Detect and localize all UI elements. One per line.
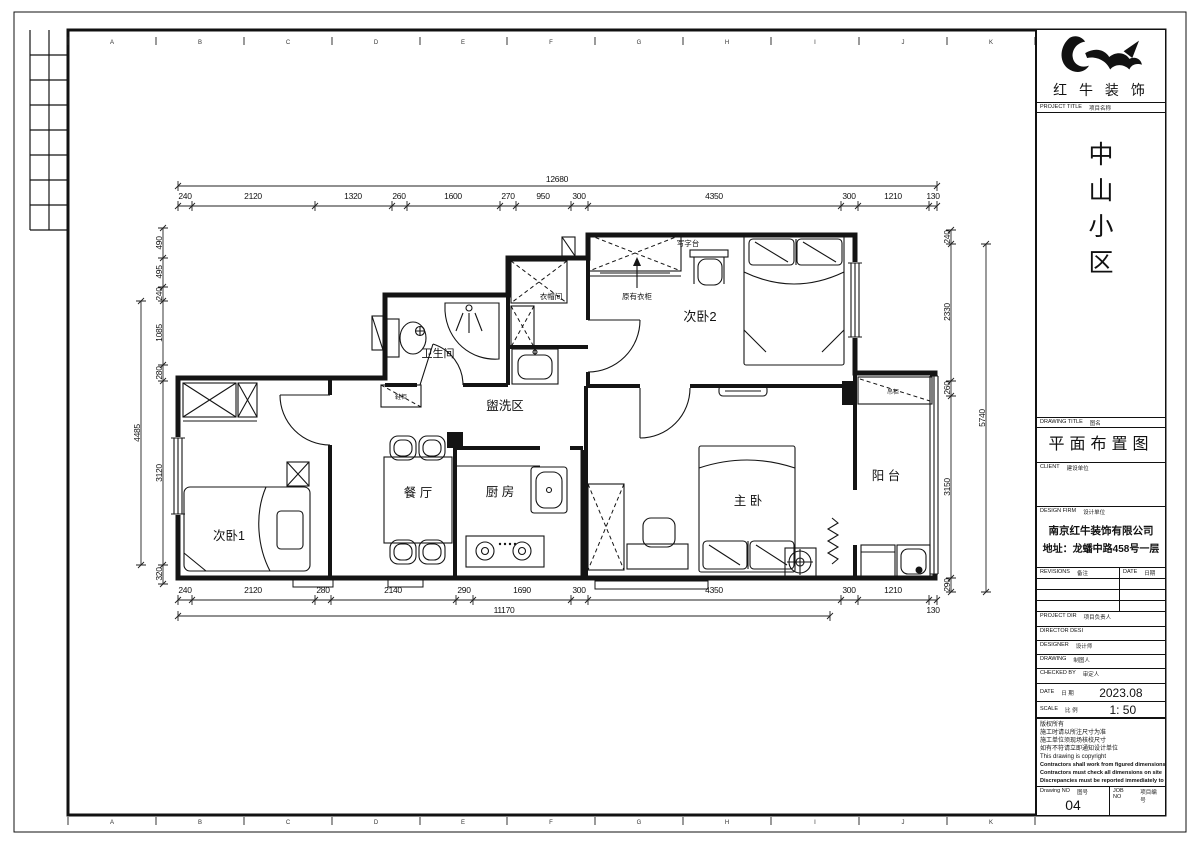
label: JOB NO: [1113, 788, 1133, 800]
dim-value: 280: [154, 366, 164, 380]
note-line: Contractors must check all dimensions on…: [1040, 769, 1162, 777]
dim-value: 240: [942, 230, 952, 244]
nightstand-icon: [287, 462, 309, 486]
grid-letter: B: [198, 40, 202, 46]
dim-value: 3120: [154, 464, 164, 482]
wall-column: [842, 381, 857, 405]
door-bedroom1: [280, 395, 330, 445]
drawing-title: 平面布置图: [1037, 428, 1165, 463]
master-bed-icon: [699, 446, 795, 572]
label: PROJECT TITLE: [1040, 104, 1082, 110]
desk-icon: [690, 250, 728, 285]
grid-letter: B: [198, 820, 202, 826]
date-row: DATE 日 期 2023.08: [1037, 684, 1165, 702]
company-logo-bull-icon: [1039, 32, 1165, 82]
dim-value: 240: [154, 287, 164, 301]
room-label-balcony: 阳 台: [872, 468, 900, 483]
fold-mark-boxes: [30, 30, 68, 230]
design-firm-row: DESIGN FIRM 设计单位 南京红牛装饰有限公司 地址：龙蟠中路458号一…: [1037, 507, 1165, 568]
dim-value: 320: [154, 567, 164, 581]
wardrobe-icon: [183, 383, 257, 421]
label: 建设单位: [1067, 464, 1089, 472]
director-row: DIRECTOR DESI: [1037, 627, 1165, 641]
dim-value: 495: [154, 265, 164, 279]
pipe-shaft-icon: [372, 316, 383, 350]
label: DATE: [1040, 689, 1054, 695]
grid-letter: I: [814, 40, 816, 46]
dim-value: 12680: [546, 174, 569, 184]
grid-letter: C: [286, 40, 291, 46]
dim-value: 270: [501, 191, 515, 201]
master-wardrobe-icon: [588, 484, 624, 570]
dining-table-icon: [384, 436, 452, 564]
room-label-bedroom2: 次卧2: [683, 309, 716, 324]
scale-row: SCALE 比 例 1: 50: [1037, 702, 1165, 718]
grid-letter: K: [989, 820, 993, 826]
walls: [178, 235, 935, 578]
dim-value: 1600: [444, 191, 462, 201]
dim-value: 300: [572, 191, 586, 201]
dimensions-bottom: 240 2120 280 2140 290 1690 300 4350 300 …: [175, 585, 940, 621]
master-desk-icon: [627, 518, 688, 569]
dim-value: 490: [154, 236, 164, 250]
annotation-hanging-cabinet: 吊柜: [887, 388, 899, 396]
annotation-existing-wardrobe: 原有衣柜: [622, 291, 652, 301]
dim-value: 4350: [705, 585, 723, 595]
project-dir-row: PROJECT DIR 项目负责人: [1037, 612, 1165, 627]
drawing-title-header: DRAWING TITLE 图名: [1037, 418, 1165, 428]
sheet-border: [14, 12, 1186, 832]
note-line: 施工时请以所注尺寸为准: [1040, 729, 1162, 737]
dimensions-left: 490 495 240 1085 280 3120 320 4485: [132, 225, 168, 587]
label: 制图人: [1073, 656, 1090, 664]
drawing-number: 04: [1037, 797, 1109, 813]
label: 项目名称: [1089, 104, 1111, 112]
grid-letter: F: [549, 40, 553, 46]
label: 设计单位: [1083, 508, 1105, 516]
project-title-header: PROJECT TITLE 项目名称: [1037, 103, 1165, 113]
dim-value: 130: [926, 191, 940, 201]
dimensions-right: 240 2330 260 3150 290 5740: [942, 227, 991, 595]
dim-value: 4485: [132, 424, 142, 442]
wall-column: [447, 432, 463, 448]
note-line: Discrepancies must be reported immediate…: [1040, 777, 1162, 785]
label: DIRECTOR DESI: [1040, 628, 1083, 634]
door-master: [640, 388, 690, 438]
windows: [171, 262, 943, 589]
wardrobe2-icon: [589, 235, 681, 288]
project-name-char: 区: [1088, 245, 1113, 281]
grid-letter: D: [374, 40, 379, 46]
notes-block: 版权所有 施工时请以所注尺寸为准 施工单位须现场核校尺寸 如有不符请立即通知设计…: [1037, 718, 1165, 787]
dim-value: 300: [572, 585, 586, 595]
dim-value: 3150: [942, 478, 952, 496]
label: REVISIONS: [1040, 569, 1070, 575]
note-line: 如有不符请立即通知设计单位: [1040, 745, 1162, 753]
designer-row: DESIGNER 设计师: [1037, 641, 1165, 655]
grid-letter: K: [989, 40, 993, 46]
dim-value: 240: [178, 191, 192, 201]
grid-letter: G: [637, 40, 642, 46]
design-firm-address: 地址：龙蟠中路458号一层: [1037, 540, 1165, 555]
washing-machine-icon: [897, 545, 930, 578]
dim-value: 1690: [513, 585, 531, 595]
note-line: 版权所有: [1040, 721, 1162, 729]
grid-letter: A: [110, 820, 114, 826]
grid-letter: I: [814, 820, 816, 826]
room-label-bedroom1: 次卧1: [213, 529, 245, 543]
dim-value: 280: [316, 585, 330, 595]
label: 备注: [1077, 569, 1088, 577]
grid-letter: A: [110, 40, 114, 46]
toilet-icon: [387, 319, 426, 357]
grid-letter: E: [461, 40, 465, 46]
label: 比 例: [1065, 706, 1078, 714]
note-line: This drawing is copyright: [1040, 753, 1162, 761]
drawing-sheet: A B C D E F G H I J K A B C D E F G H I …: [0, 0, 1200, 844]
company-name: 红 牛 装 饰: [1037, 80, 1165, 100]
dim-value: 11170: [494, 605, 515, 615]
label: 图名: [1090, 419, 1101, 427]
room-label-cloak: 衣帽间: [540, 291, 563, 301]
grid-letter: H: [725, 820, 729, 826]
door-bedroom2: [588, 320, 640, 372]
grid-letter: D: [374, 820, 379, 826]
dim-value: 300: [842, 585, 856, 595]
label: 日 期: [1061, 689, 1074, 697]
bed2-icon: [744, 234, 844, 365]
dim-value: 2140: [384, 585, 402, 595]
room-label-dining: 餐 厅: [404, 485, 432, 500]
balcony-cabinet-icon: [861, 545, 895, 578]
label: SCALE: [1040, 706, 1058, 712]
label: 设计师: [1076, 642, 1093, 650]
annotation-desk: 写字台: [677, 238, 700, 248]
dimensions-top: 12680 240 2120 1320 260 1600 270 950 300…: [175, 174, 940, 211]
dim-value: 260: [942, 381, 952, 395]
drawing-by-row: DRAWING 制图人: [1037, 655, 1165, 669]
project-name-char: 山: [1088, 173, 1113, 209]
checked-by-row: CHECKED BY 审定人: [1037, 669, 1165, 684]
dim-value: 2120: [244, 585, 262, 595]
dim-value: 1210: [884, 191, 902, 201]
label: Drawing NO: [1040, 788, 1070, 794]
room-label-wash: 盥洗区: [486, 399, 524, 413]
washbasin-icon: [512, 349, 558, 384]
dim-value: 290: [942, 578, 952, 592]
dim-value: 260: [392, 191, 406, 201]
label: DRAWING TITLE: [1040, 419, 1083, 425]
grid-letter: C: [286, 820, 291, 826]
dim-value: 1210: [884, 585, 902, 595]
label: DRAWING: [1040, 656, 1066, 662]
floor-plan-canvas: A B C D E F G H I J K A B C D E F G H I …: [0, 0, 1200, 844]
dim-value: 4350: [705, 191, 723, 201]
dim-value: 2330: [942, 303, 952, 321]
frame-border: [68, 30, 1165, 815]
grid-letter: G: [637, 820, 642, 826]
label: DESIGN FIRM: [1040, 508, 1076, 514]
grid-letter: F: [549, 820, 553, 826]
label: PROJECT DIR: [1040, 613, 1077, 619]
dim-value: 240: [178, 585, 192, 595]
grid-letter: E: [461, 820, 465, 826]
design-firm-name: 南京红牛装饰有限公司: [1037, 523, 1165, 538]
label: CLIENT: [1040, 464, 1060, 470]
room-label-master: 主 卧: [734, 494, 762, 508]
grid-letters-top: A B C D E F G H I J K: [68, 37, 1035, 46]
project-name-char: 中: [1088, 137, 1113, 173]
stove-icon: [466, 536, 544, 567]
note-line: 施工单位须现场核校尺寸: [1040, 737, 1162, 745]
project-name-char: 小: [1088, 209, 1113, 245]
label: 日期: [1144, 569, 1155, 577]
scale-value: 1: 50: [1081, 703, 1165, 717]
dim-value: 290: [457, 585, 471, 595]
dim-value: 130: [926, 605, 940, 615]
label: DESIGNER: [1040, 642, 1069, 648]
logo-panel: 红 牛 装 饰: [1037, 30, 1165, 103]
grid-letters-bottom: A B C D E F G H I J K: [68, 817, 1035, 826]
label: 审定人: [1083, 670, 1100, 678]
dim-value: 2120: [244, 191, 262, 201]
radiator-icon: [828, 518, 838, 564]
dim-value: 1320: [344, 191, 362, 201]
grid-letter: J: [902, 820, 905, 826]
date-value: 2023.08: [1077, 686, 1165, 700]
note-line: Contractors shall work from figured dime…: [1040, 761, 1162, 769]
dim-value: 950: [536, 191, 550, 201]
project-name: 中 山 小 区: [1037, 113, 1165, 418]
label: 项目编号: [1140, 788, 1162, 804]
dim-value: 300: [842, 191, 856, 201]
grid-letter: J: [902, 40, 905, 46]
floor-drain-icon: [785, 548, 816, 577]
label: DATE: [1123, 569, 1137, 575]
title-block: 红 牛 装 饰 PROJECT TITLE 项目名称 中 山 小 区 DRAWI…: [1035, 30, 1165, 815]
bed-icon: [184, 487, 310, 571]
dim-value: 1085: [154, 324, 164, 342]
label: 项目负责人: [1084, 613, 1112, 621]
dim-value: 5740: [977, 409, 987, 427]
client-row: CLIENT 建设单位: [1037, 463, 1165, 507]
revisions-table: REVISIONS 备注 DATE 日期: [1037, 568, 1165, 612]
room-label-kitchen: 厨 房: [486, 484, 514, 499]
label: 图号: [1077, 788, 1088, 796]
room-label-bath: 卫生间: [422, 346, 455, 360]
grid-letter: H: [725, 40, 729, 46]
drawing-number-row: Drawing NO 图号 04 JOB NO 项目编号: [1037, 787, 1165, 815]
annotation-shoe-cabinet: 鞋柜: [395, 393, 407, 401]
label: CHECKED BY: [1040, 670, 1076, 676]
doors: [280, 320, 690, 445]
